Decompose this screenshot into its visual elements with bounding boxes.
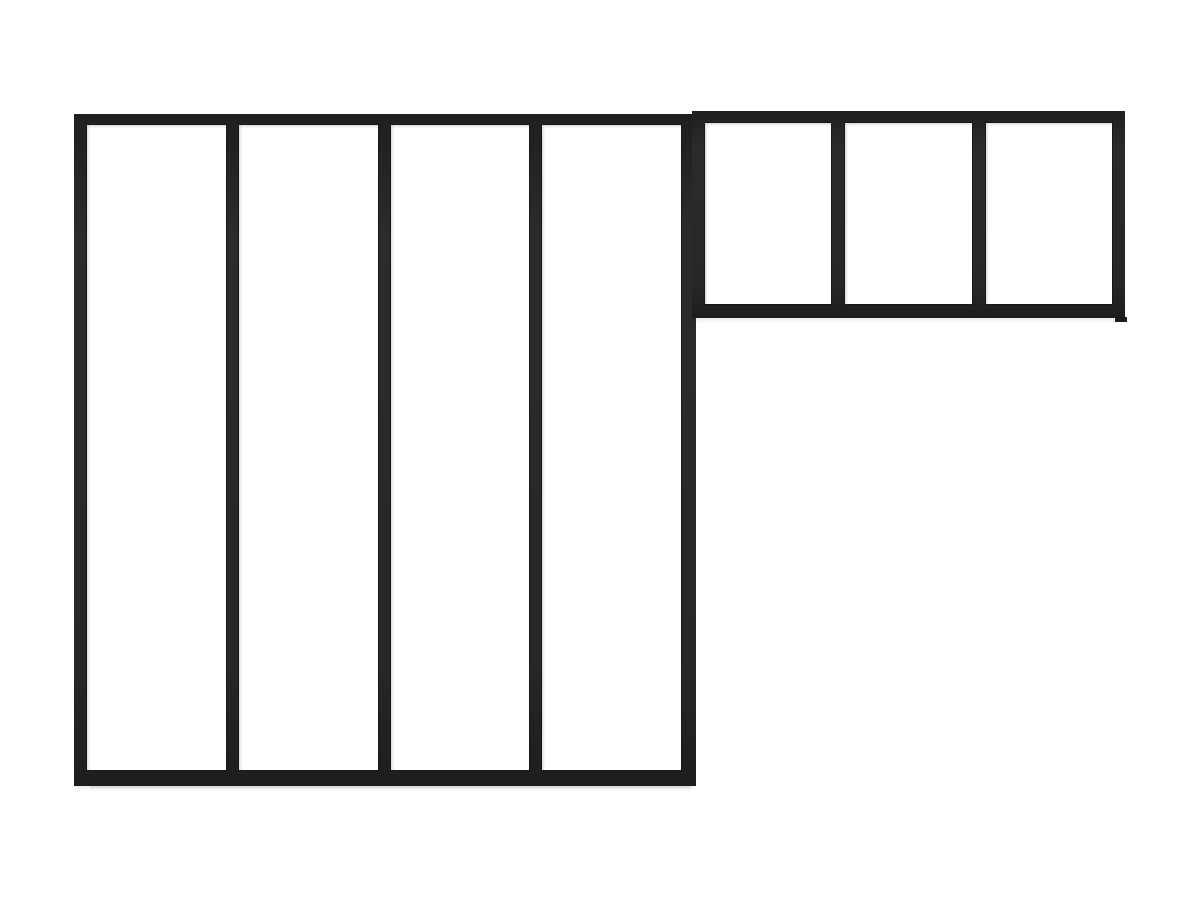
product-image-canvas	[0, 0, 1200, 900]
frame-floor-shadow	[90, 786, 690, 790]
glass-panel	[239, 125, 378, 770]
frame-corner-foot	[1115, 317, 1127, 322]
glass-panel	[87, 125, 226, 770]
partition-tall-section	[74, 114, 696, 786]
glass-panel	[705, 123, 831, 304]
glass-panel	[986, 123, 1112, 304]
glass-panel	[845, 123, 971, 304]
glass-panel	[391, 125, 530, 770]
glass-panel	[542, 125, 681, 770]
partition-short-section	[692, 111, 1125, 318]
